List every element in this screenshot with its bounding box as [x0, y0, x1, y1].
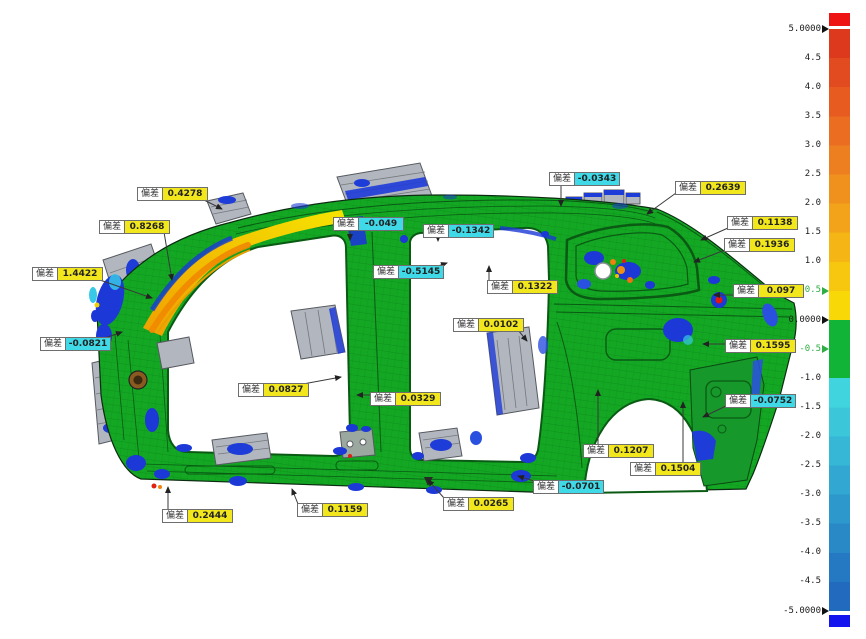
- scale-tick-label: 3.5: [751, 111, 821, 122]
- deviation-callout-title: 偏差: [725, 239, 750, 251]
- scale-overflow-high-block: [829, 13, 850, 26]
- deviation-callout[interactable]: 偏差0.1159: [297, 503, 368, 517]
- deviation-callout[interactable]: 偏差0.1322: [487, 280, 558, 294]
- deviation-callout[interactable]: 偏差-0.1342: [423, 224, 494, 238]
- deviation-callout-title: 偏差: [676, 182, 701, 194]
- deviation-callout[interactable]: 偏差0.1504: [630, 462, 701, 476]
- deviation-callout-title: 偏差: [444, 498, 469, 510]
- scale-tick-label: -2.0: [751, 431, 821, 442]
- deviation-callout-value: 0.4278: [163, 188, 207, 200]
- deviation-callout-title: 偏差: [534, 481, 559, 493]
- scale-tick-arrow-icon: [822, 316, 829, 324]
- scale-tick-label: 4.5: [751, 53, 821, 64]
- deviation-callout-title: 偏差: [33, 268, 58, 280]
- scale-tick-label: 5.0000: [751, 24, 821, 35]
- deviation-callout-value: -0.0343: [575, 173, 619, 185]
- deviation-callout-title: 偏差: [424, 225, 449, 237]
- deviation-callout-value: 1.4422: [58, 268, 102, 280]
- scale-tick-arrow-icon: [822, 607, 829, 615]
- deviation-callout-value: 0.0102: [479, 319, 523, 331]
- deviation-callout-value: -0.049: [359, 218, 403, 230]
- deviation-callout-value: 0.2444: [188, 510, 232, 522]
- deviation-callout[interactable]: 偏差-0.5145: [373, 265, 444, 279]
- deviation-callout-value: -0.0821: [66, 338, 110, 350]
- deviation-callout[interactable]: 偏差-0.0752: [725, 394, 796, 408]
- scale-tick-label: -4.5: [751, 576, 821, 587]
- deviation-callout-value: 0.0329: [396, 393, 440, 405]
- deviation-callout-title: 偏差: [138, 188, 163, 200]
- deviation-callout-value: -0.1342: [449, 225, 493, 237]
- deviation-callout-value: 0.1138: [753, 217, 797, 229]
- deviation-callout[interactable]: 偏差0.2444: [162, 509, 233, 523]
- deviation-callout-value: -0.0701: [559, 481, 603, 493]
- deviation-callout-value: 0.1595: [751, 340, 795, 352]
- deviation-callout[interactable]: 偏差-0.0701: [533, 480, 604, 494]
- scale-tick-label: -3.0: [751, 489, 821, 500]
- deviation-callout[interactable]: 偏差0.8268: [99, 220, 170, 234]
- deviation-callout[interactable]: 偏差0.0827: [238, 383, 309, 397]
- deviation-callout-value: 0.0265: [469, 498, 513, 510]
- scale-tick-label: -1.0: [751, 373, 821, 384]
- scale-tick-label: -4.0: [751, 547, 821, 558]
- scale-tick-label: 0.0000: [751, 315, 821, 326]
- deviation-callout-title: 偏差: [100, 221, 125, 233]
- scale-tick-arrow-icon: [822, 25, 829, 33]
- deviation-callout-value: 0.0827: [264, 384, 308, 396]
- scale-tick-label: 3.0: [751, 140, 821, 151]
- deviation-callout-value: 0.8268: [125, 221, 169, 233]
- deviation-callout-value: 0.1504: [656, 463, 700, 475]
- scale-overflow-low-block: [829, 615, 850, 627]
- deviation-callout-title: 偏差: [728, 217, 753, 229]
- deviation-callout[interactable]: 偏差0.2639: [675, 181, 746, 195]
- scale-tick-label: 2.5: [751, 169, 821, 180]
- deviation-callout-title: 偏差: [454, 319, 479, 331]
- scale-tick-arrow-icon: [822, 345, 829, 353]
- deviation-callout-title: 偏差: [488, 281, 513, 293]
- deviation-callout-title: 偏差: [631, 463, 656, 475]
- deviation-callout-value: 0.1207: [609, 445, 653, 457]
- deviation-callout-title: 偏差: [726, 395, 751, 407]
- deviation-callout[interactable]: 偏差0.0265: [443, 497, 514, 511]
- deviation-callout[interactable]: 偏差0.1595: [725, 339, 796, 353]
- deviation-callout-value: 0.1936: [750, 239, 794, 251]
- deviation-callout[interactable]: 偏差0.097: [733, 284, 804, 298]
- deviation-callout[interactable]: 偏差0.1936: [724, 238, 795, 252]
- deviation-callout[interactable]: 偏差0.0329: [370, 392, 441, 406]
- scale-gradient-bar[interactable]: [829, 29, 850, 611]
- deviation-callout[interactable]: 偏差-0.0821: [40, 337, 111, 351]
- scale-tick-label: -5.0000: [751, 606, 821, 617]
- deviation-callout-title: 偏差: [550, 173, 575, 185]
- scale-tick-label: -3.5: [751, 518, 821, 529]
- deviation-callout[interactable]: 偏差0.1207: [583, 444, 654, 458]
- deviation-callout-value: 0.097: [759, 285, 803, 297]
- deviation-callout[interactable]: 偏差0.4278: [137, 187, 208, 201]
- deviation-callout-value: -0.5145: [399, 266, 443, 278]
- color-scale-legend: 5.00004.54.03.53.02.52.01.51.00.50.0000-…: [0, 0, 866, 639]
- deviation-callout[interactable]: 偏差0.0102: [453, 318, 524, 332]
- deviation-callout-title: 偏差: [374, 266, 399, 278]
- deviation-callout[interactable]: 偏差-0.0343: [549, 172, 620, 186]
- deviation-callout-title: 偏差: [163, 510, 188, 522]
- deviation-callout-title: 偏差: [41, 338, 66, 350]
- deviation-callout-title: 偏差: [298, 504, 323, 516]
- deviation-callout-title: 偏差: [584, 445, 609, 457]
- scale-tick-label: 4.0: [751, 82, 821, 93]
- 3d-inspection-viewport[interactable]: 偏差0.4278偏差0.8268偏差1.4422偏差-0.0821偏差-0.04…: [0, 0, 866, 639]
- scale-tick-label: -2.5: [751, 460, 821, 471]
- deviation-callout-title: 偏差: [734, 285, 759, 297]
- deviation-callout-value: -0.0752: [751, 395, 795, 407]
- deviation-callout-title: 偏差: [239, 384, 264, 396]
- deviation-callout[interactable]: 偏差0.1138: [727, 216, 798, 230]
- deviation-callout-value: 0.2639: [701, 182, 745, 194]
- deviation-callout[interactable]: 偏差1.4422: [32, 267, 103, 281]
- deviation-callout[interactable]: 偏差-0.049: [333, 217, 404, 231]
- scale-tick-label: 2.0: [751, 198, 821, 209]
- deviation-callout-title: 偏差: [334, 218, 359, 230]
- deviation-callout-value: 0.1159: [323, 504, 367, 516]
- deviation-callout-title: 偏差: [726, 340, 751, 352]
- scale-tick-arrow-icon: [822, 287, 829, 295]
- deviation-callout-value: 0.1322: [513, 281, 557, 293]
- deviation-callout-title: 偏差: [371, 393, 396, 405]
- scale-tick-label: 1.0: [751, 256, 821, 267]
